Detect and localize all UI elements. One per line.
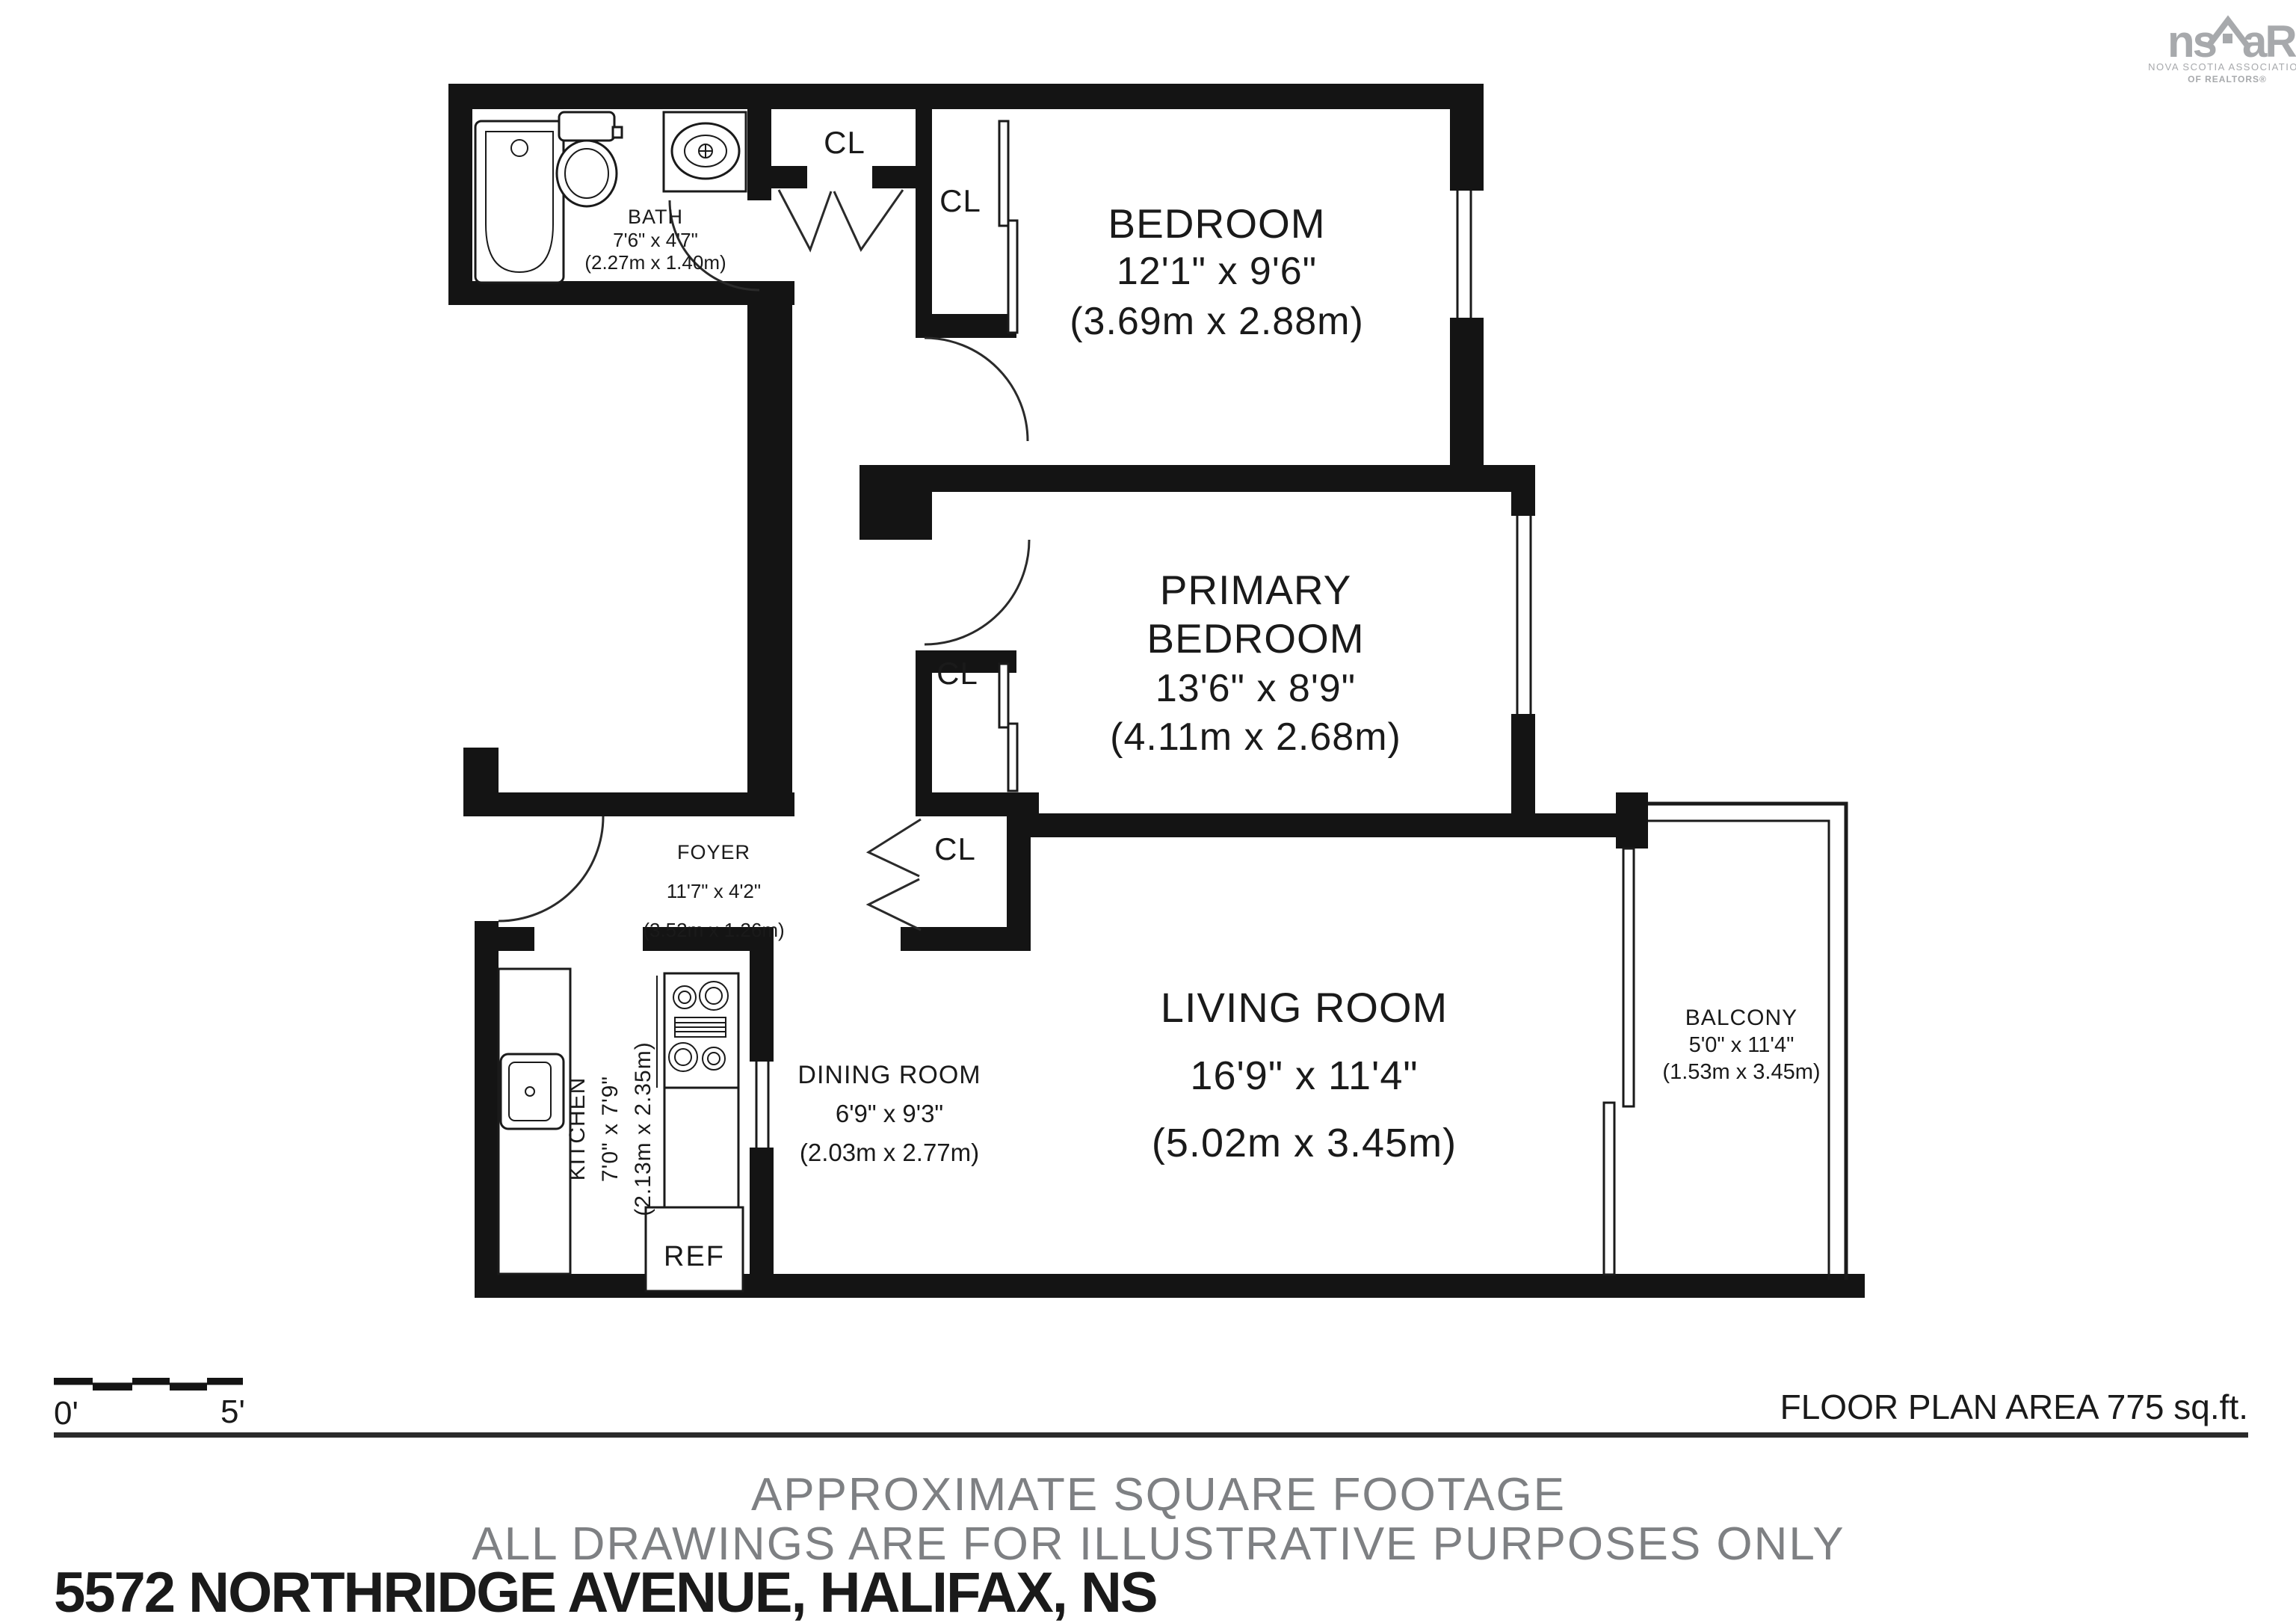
- foyer-label: FOYER 11'7" x 4'2" (3.52m x 1.26m): [643, 841, 784, 941]
- foyer-dims-imperial: 11'7" x 4'2": [667, 880, 761, 902]
- balcony-sliding-door-icon: [1604, 849, 1634, 1275]
- bedroom-door-arc: [925, 338, 1028, 441]
- bath-dims-metric: (2.27m x 1.40m): [584, 251, 726, 274]
- dining-dims-imperial: 6'9" x 9'3": [836, 1100, 943, 1127]
- scale-bar: 0' 5': [54, 1378, 245, 1432]
- balcony-dims-imperial: 5'0" x 11'4": [1689, 1033, 1794, 1057]
- primary-name-line2: BEDROOM: [1147, 615, 1364, 662]
- living-dims-metric: (5.02m x 3.45m): [1152, 1121, 1457, 1165]
- living-room-label: LIVING ROOM 16'9" x 11'4" (5.02m x 3.45m…: [1152, 984, 1457, 1165]
- bedroom-closet-label: CL: [939, 183, 981, 218]
- foyer-name: FOYER: [677, 841, 750, 863]
- bathroom-sink-icon: [664, 112, 746, 191]
- foyer-dims-metric: (3.52m x 1.26m): [643, 919, 784, 941]
- kitchen-passthrough-icon: [756, 1062, 768, 1148]
- logo-caption-2: OF REALTORS®: [2188, 74, 2267, 84]
- balcony-dims-metric: (1.53m x 3.45m): [1662, 1060, 1820, 1084]
- foyer-closet-bifold-icon: [868, 819, 921, 930]
- foyer-closet-label: CL: [934, 831, 976, 866]
- primary-name-line1: PRIMARY: [1160, 567, 1352, 613]
- primary-bedroom-label: PRIMARY BEDROOM 13'6" x 8'9" (4.11m x 2.…: [1110, 567, 1401, 759]
- dining-room-label: DINING ROOM 6'9" x 9'3" (2.03m x 2.77m): [797, 1061, 981, 1166]
- primary-closet-label: CL: [936, 656, 978, 691]
- divider-line: [54, 1432, 2248, 1438]
- bath-name: BATH: [628, 206, 683, 228]
- floor-plan-area-note: FLOOR PLAN AREA 775 sq.ft.: [1780, 1388, 2248, 1426]
- kitchen-dims-imperial: 7'0" x 7'9": [598, 1076, 623, 1182]
- floor-plan-canvas: BATH 7'6" x 4'7" (2.27m x 1.40m) BEDROOM…: [0, 0, 2296, 1623]
- kitchen-sink-icon: [501, 1054, 564, 1129]
- hall-closet-label: CL: [824, 125, 865, 160]
- balcony-name: BALCONY: [1685, 1005, 1797, 1030]
- kitchen-name: KITCHEN: [565, 1077, 590, 1181]
- bedroom-closet-sliding-door-icon: [999, 121, 1017, 333]
- primary-bedroom-window-icon: [1517, 516, 1531, 714]
- footer-note-1: APPROXIMATE SQUARE FOOTAGE: [751, 1469, 1566, 1521]
- bedroom-dims-metric: (3.69m x 2.88m): [1070, 300, 1364, 343]
- dining-dims-metric: (2.03m x 2.77m): [800, 1139, 979, 1166]
- living-name: LIVING ROOM: [1161, 984, 1448, 1031]
- bathtub-icon: [475, 121, 564, 283]
- primary-door-arc: [925, 540, 1029, 644]
- entry-door-arc: [499, 816, 603, 921]
- bedroom-window-icon: [1457, 191, 1471, 318]
- bedroom-name: BEDROOM: [1108, 200, 1325, 247]
- living-dims-imperial: 16'9" x 11'4": [1190, 1053, 1418, 1098]
- primary-dims-metric: (4.11m x 2.68m): [1110, 715, 1401, 759]
- bath-label: BATH 7'6" x 4'7" (2.27m x 1.40m): [584, 206, 726, 274]
- scale-start-label: 0': [54, 1395, 78, 1432]
- hall-closet-bifold-icon: [779, 190, 903, 250]
- primary-dims-imperial: 13'6" x 8'9": [1155, 667, 1356, 710]
- primary-closet-sliding-door-icon: [999, 664, 1017, 791]
- bedroom-label: BEDROOM 12'1" x 9'6" (3.69m x 2.88m): [1070, 200, 1364, 343]
- nsar-logo: ns aR NOVA SCOTIA ASSOCIATION OF REALTOR…: [2148, 16, 2296, 84]
- floor-plan-page: BATH 7'6" x 4'7" (2.27m x 1.40m) BEDROOM…: [0, 0, 2296, 1623]
- fridge-label: REF: [664, 1241, 725, 1272]
- dining-name: DINING ROOM: [797, 1061, 981, 1089]
- stove-icon: [664, 973, 738, 1088]
- kitchen-dims-metric: (2.13m x 2.35m): [631, 1041, 655, 1216]
- bedroom-dims-imperial: 12'1" x 9'6": [1117, 250, 1317, 293]
- bath-dims-imperial: 7'6" x 4'7": [613, 229, 698, 251]
- logo-ar-text: aR: [2242, 16, 2296, 67]
- property-address: 5572 NORTHRIDGE AVENUE, HALIFAX, NS: [54, 1561, 1157, 1623]
- logo-caption-1: NOVA SCOTIA ASSOCIATION: [2148, 61, 2296, 73]
- toilet-icon: [557, 112, 622, 206]
- scale-end-label: 5': [220, 1393, 245, 1430]
- balcony-label: BALCONY 5'0" x 11'4" (1.53m x 3.45m): [1662, 1005, 1820, 1084]
- kitchen-label: KITCHEN 7'0" x 7'9" (2.13m x 2.35m): [565, 1041, 655, 1216]
